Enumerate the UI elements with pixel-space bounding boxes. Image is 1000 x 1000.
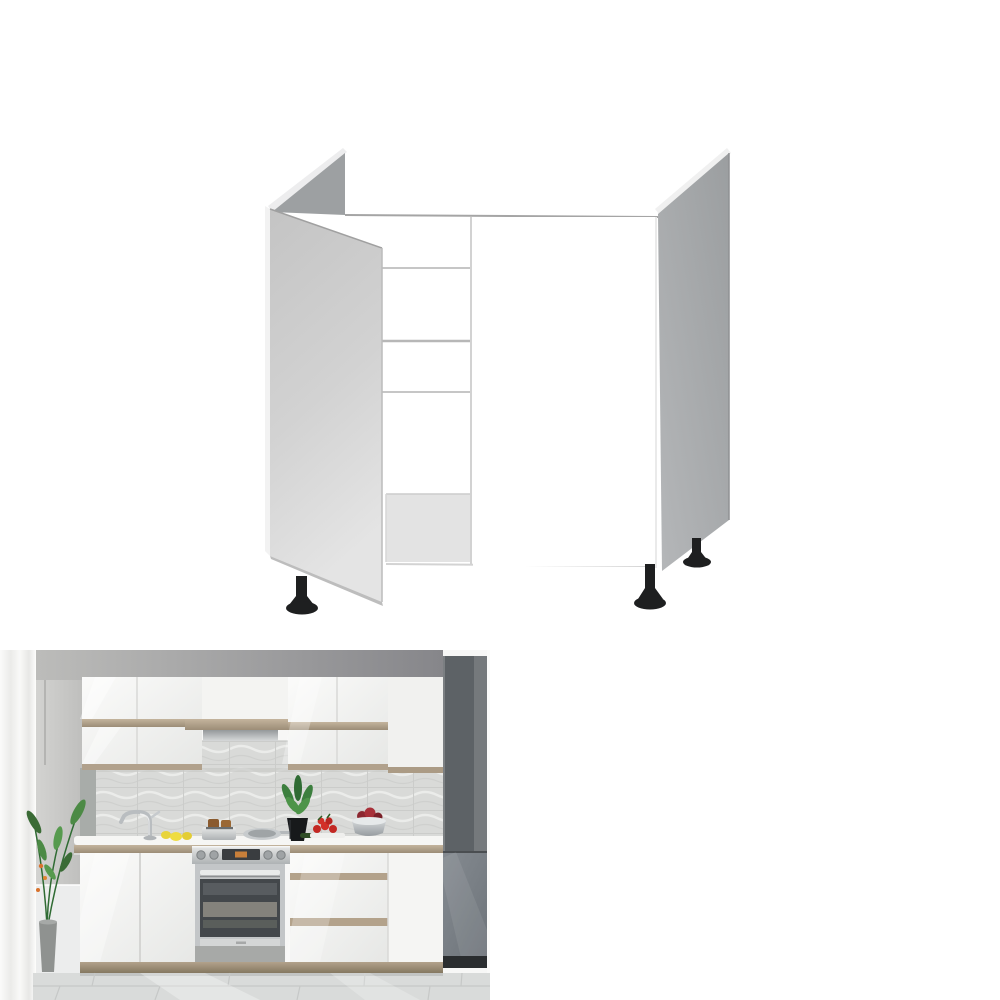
foot-front-right bbox=[634, 564, 666, 610]
drawer-unit bbox=[285, 853, 388, 962]
upper-cabinet-left bbox=[80, 677, 202, 770]
bottom-panel bbox=[386, 494, 470, 562]
kitchen-photo-svg bbox=[0, 650, 490, 1000]
right-side-panel bbox=[655, 148, 731, 571]
cooker-control-panel bbox=[192, 846, 290, 864]
ceiling-shadow-band bbox=[36, 650, 443, 680]
floor bbox=[33, 973, 490, 1000]
cooker bbox=[192, 846, 290, 962]
fridge-base bbox=[436, 956, 487, 968]
oven bbox=[195, 864, 285, 962]
upper-cabinet-right bbox=[282, 677, 388, 770]
extractor-hood bbox=[203, 730, 278, 741]
left-side-panel bbox=[268, 148, 347, 215]
plinth bbox=[80, 962, 443, 973]
sink-base-cabinet-render bbox=[0, 0, 1000, 650]
base-door-right bbox=[388, 853, 443, 962]
oven-logo bbox=[236, 942, 246, 945]
cabinet-render-svg bbox=[0, 0, 1000, 650]
base-doors-left bbox=[70, 853, 202, 962]
closed-right-door bbox=[473, 217, 657, 568]
curtain bbox=[0, 650, 36, 1000]
upper-cabinet-far-right bbox=[388, 677, 443, 773]
hood-wood-shelf bbox=[185, 719, 290, 730]
oven-handle bbox=[200, 870, 280, 875]
product-image-canvas bbox=[0, 0, 1000, 1000]
plant-pot bbox=[39, 922, 57, 972]
foot-front-left bbox=[286, 576, 318, 615]
open-left-door bbox=[265, 206, 383, 606]
kitchen-scene-photo bbox=[0, 650, 490, 1000]
